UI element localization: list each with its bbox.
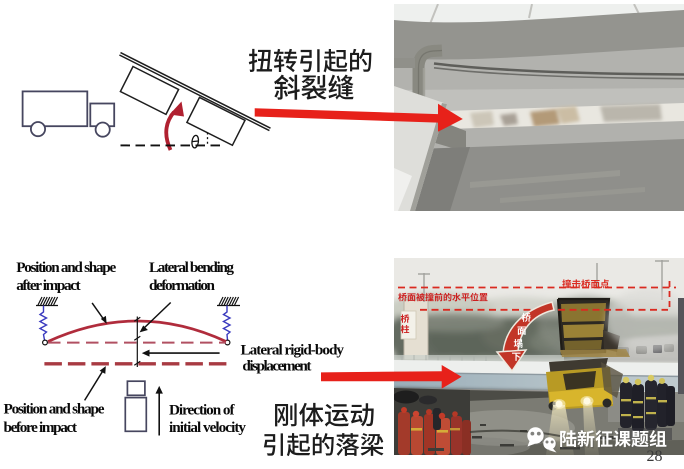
svg-text:Position and shape: Position and shape	[4, 400, 105, 417]
svg-text:after impact: after impact	[16, 277, 81, 294]
svg-text:deformation: deformation	[149, 277, 216, 294]
svg-text:Lateral bending: Lateral bending	[149, 259, 234, 276]
svg-text:Position and shape: Position and shape	[16, 259, 116, 276]
svg-text:before impact: before impact	[4, 419, 78, 436]
svg-text:initial velocity: initial velocity	[169, 419, 246, 436]
svg-text:displacement: displacement	[242, 358, 311, 375]
svg-text:Lateral rigid-body: Lateral rigid-body	[241, 341, 345, 358]
svg-text:Direction of: Direction of	[169, 401, 235, 418]
svg-text:28: 28	[647, 448, 663, 465]
